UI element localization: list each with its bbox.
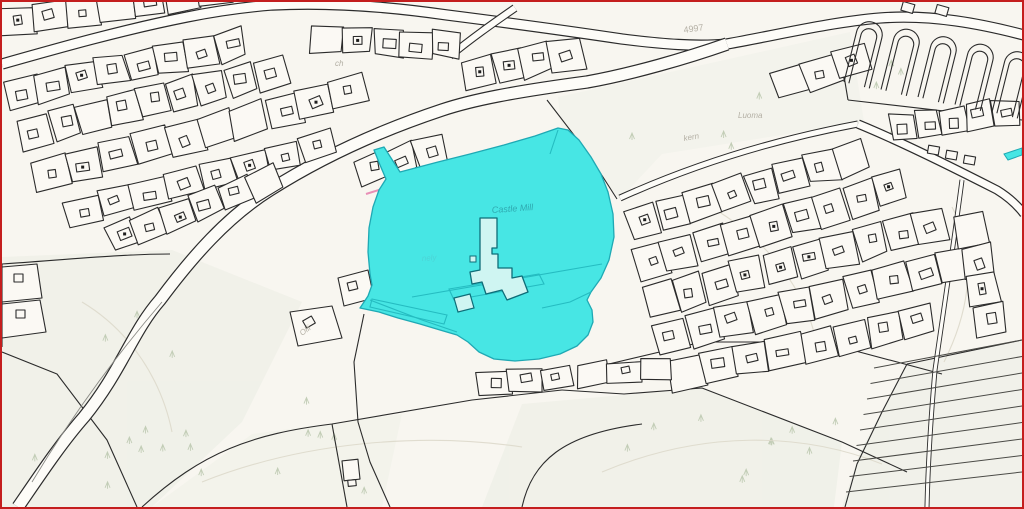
place-label-luoma: Luoma bbox=[738, 111, 763, 120]
building-footprint bbox=[794, 300, 806, 308]
building-footprint bbox=[281, 153, 290, 161]
building-footprint bbox=[662, 331, 674, 341]
building-footprint bbox=[80, 74, 83, 77]
building-footprint bbox=[491, 378, 501, 387]
parcel bbox=[95, 2, 135, 22]
building-footprint bbox=[772, 225, 775, 228]
building-footprint bbox=[42, 9, 54, 20]
building-footprint bbox=[949, 118, 958, 128]
building-footprint bbox=[211, 169, 221, 179]
building-footprint bbox=[79, 10, 87, 17]
building-footprint bbox=[551, 373, 560, 381]
building-footprint bbox=[743, 273, 746, 276]
building-footprint bbox=[16, 19, 19, 22]
building-footprint bbox=[925, 122, 936, 130]
building-footprint bbox=[815, 70, 825, 79]
building-footprint bbox=[850, 59, 853, 62]
building-footprint bbox=[233, 73, 246, 84]
building-footprint bbox=[426, 146, 438, 158]
place-label-ch: ch bbox=[335, 59, 344, 68]
building-footprint bbox=[164, 52, 177, 61]
building-footprint bbox=[145, 223, 155, 232]
building-footprint bbox=[878, 322, 888, 332]
selected-parcel-note-label: nely bbox=[422, 253, 438, 263]
building-footprint bbox=[508, 64, 511, 67]
building-footprint bbox=[248, 164, 251, 167]
building-footprint bbox=[343, 85, 352, 94]
building-footprint bbox=[116, 100, 127, 111]
building-footprint bbox=[621, 366, 630, 374]
building-footprint bbox=[1001, 108, 1013, 117]
building-footprint bbox=[684, 288, 693, 297]
building-footprint bbox=[897, 124, 907, 134]
building-footprint bbox=[986, 312, 997, 324]
building-footprint bbox=[779, 266, 782, 269]
building-footprint bbox=[890, 276, 899, 284]
building-footprint bbox=[370, 161, 379, 170]
map-viewport[interactable]: Castle Mill nely 4997 Luoma kern ch Olli bbox=[0, 0, 1024, 509]
building-footprint bbox=[15, 90, 27, 101]
building-footprint bbox=[409, 43, 422, 52]
building-footprint bbox=[707, 238, 719, 246]
building-footprint bbox=[61, 115, 73, 126]
building-footprint bbox=[981, 287, 984, 290]
building-footprint bbox=[696, 196, 710, 208]
building-footprint bbox=[123, 232, 126, 235]
building-footprint bbox=[643, 218, 646, 221]
building-footprint bbox=[699, 324, 712, 334]
building-footprint bbox=[737, 228, 749, 239]
building-footprint bbox=[887, 185, 890, 188]
building-footprint bbox=[971, 107, 984, 117]
building-footprint bbox=[313, 140, 322, 149]
building-footprint bbox=[711, 358, 725, 369]
building-footprint bbox=[848, 336, 857, 344]
building-footprint bbox=[899, 231, 909, 239]
building-footprint bbox=[765, 308, 774, 317]
building-footprint bbox=[438, 43, 449, 51]
building-footprint bbox=[107, 64, 118, 75]
building-footprint bbox=[146, 140, 158, 151]
parcel bbox=[641, 359, 672, 380]
building-footprint bbox=[228, 186, 239, 195]
building-footprint bbox=[27, 129, 38, 139]
building-footprint bbox=[478, 70, 481, 73]
building-footprint bbox=[824, 204, 834, 214]
building-footprint bbox=[150, 92, 159, 102]
building-footprint bbox=[532, 53, 544, 61]
building-footprint bbox=[81, 166, 84, 169]
building-footprint bbox=[143, 191, 156, 200]
building-footprint bbox=[356, 39, 359, 42]
building-footprint bbox=[520, 373, 532, 383]
parcel bbox=[309, 26, 343, 54]
building-footprint bbox=[807, 255, 810, 258]
building-footprint bbox=[814, 162, 823, 172]
building-footprint bbox=[868, 234, 877, 243]
building-footprint bbox=[857, 194, 867, 202]
building-footprint bbox=[80, 209, 90, 218]
building-footprint bbox=[179, 216, 182, 219]
building-footprint bbox=[815, 341, 826, 352]
map-canvas[interactable]: Castle Mill nely 4997 Luoma kern ch Olli bbox=[2, 2, 1022, 507]
building-footprint bbox=[314, 101, 317, 104]
building-footprint bbox=[776, 349, 789, 357]
building-footprint bbox=[383, 39, 397, 49]
building-footprint bbox=[46, 81, 60, 91]
building-footprint bbox=[753, 178, 766, 190]
building-footprint bbox=[48, 169, 56, 178]
